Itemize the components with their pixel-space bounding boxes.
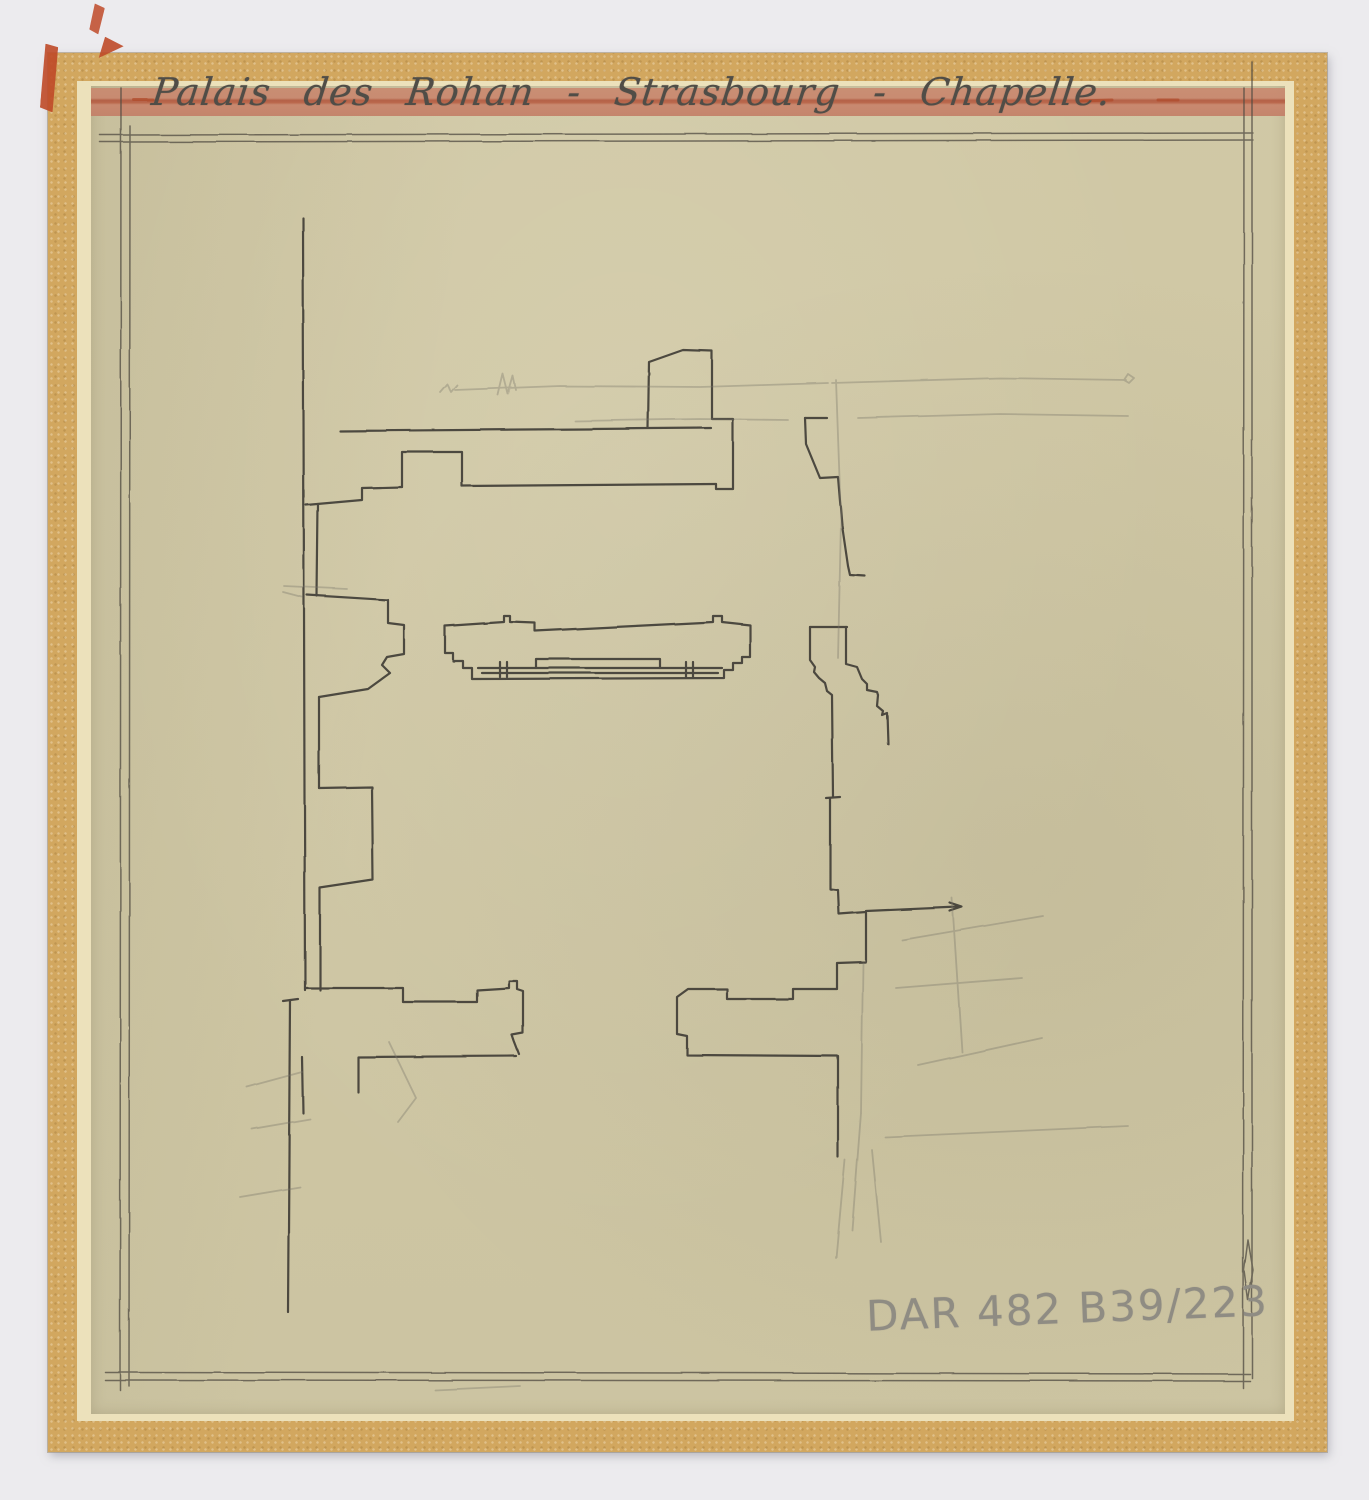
tracing-paper bbox=[77, 81, 1294, 1421]
mount-tape-frame bbox=[48, 53, 1327, 1452]
red-tape-fragment bbox=[89, 3, 106, 35]
title-inscription: Palais des Rohan - Strasbourg - Chapelle… bbox=[149, 70, 1154, 114]
scan-page: Palais des Rohan - Strasbourg - Chapelle… bbox=[0, 0, 1369, 1500]
paper-texture bbox=[91, 86, 1285, 1414]
